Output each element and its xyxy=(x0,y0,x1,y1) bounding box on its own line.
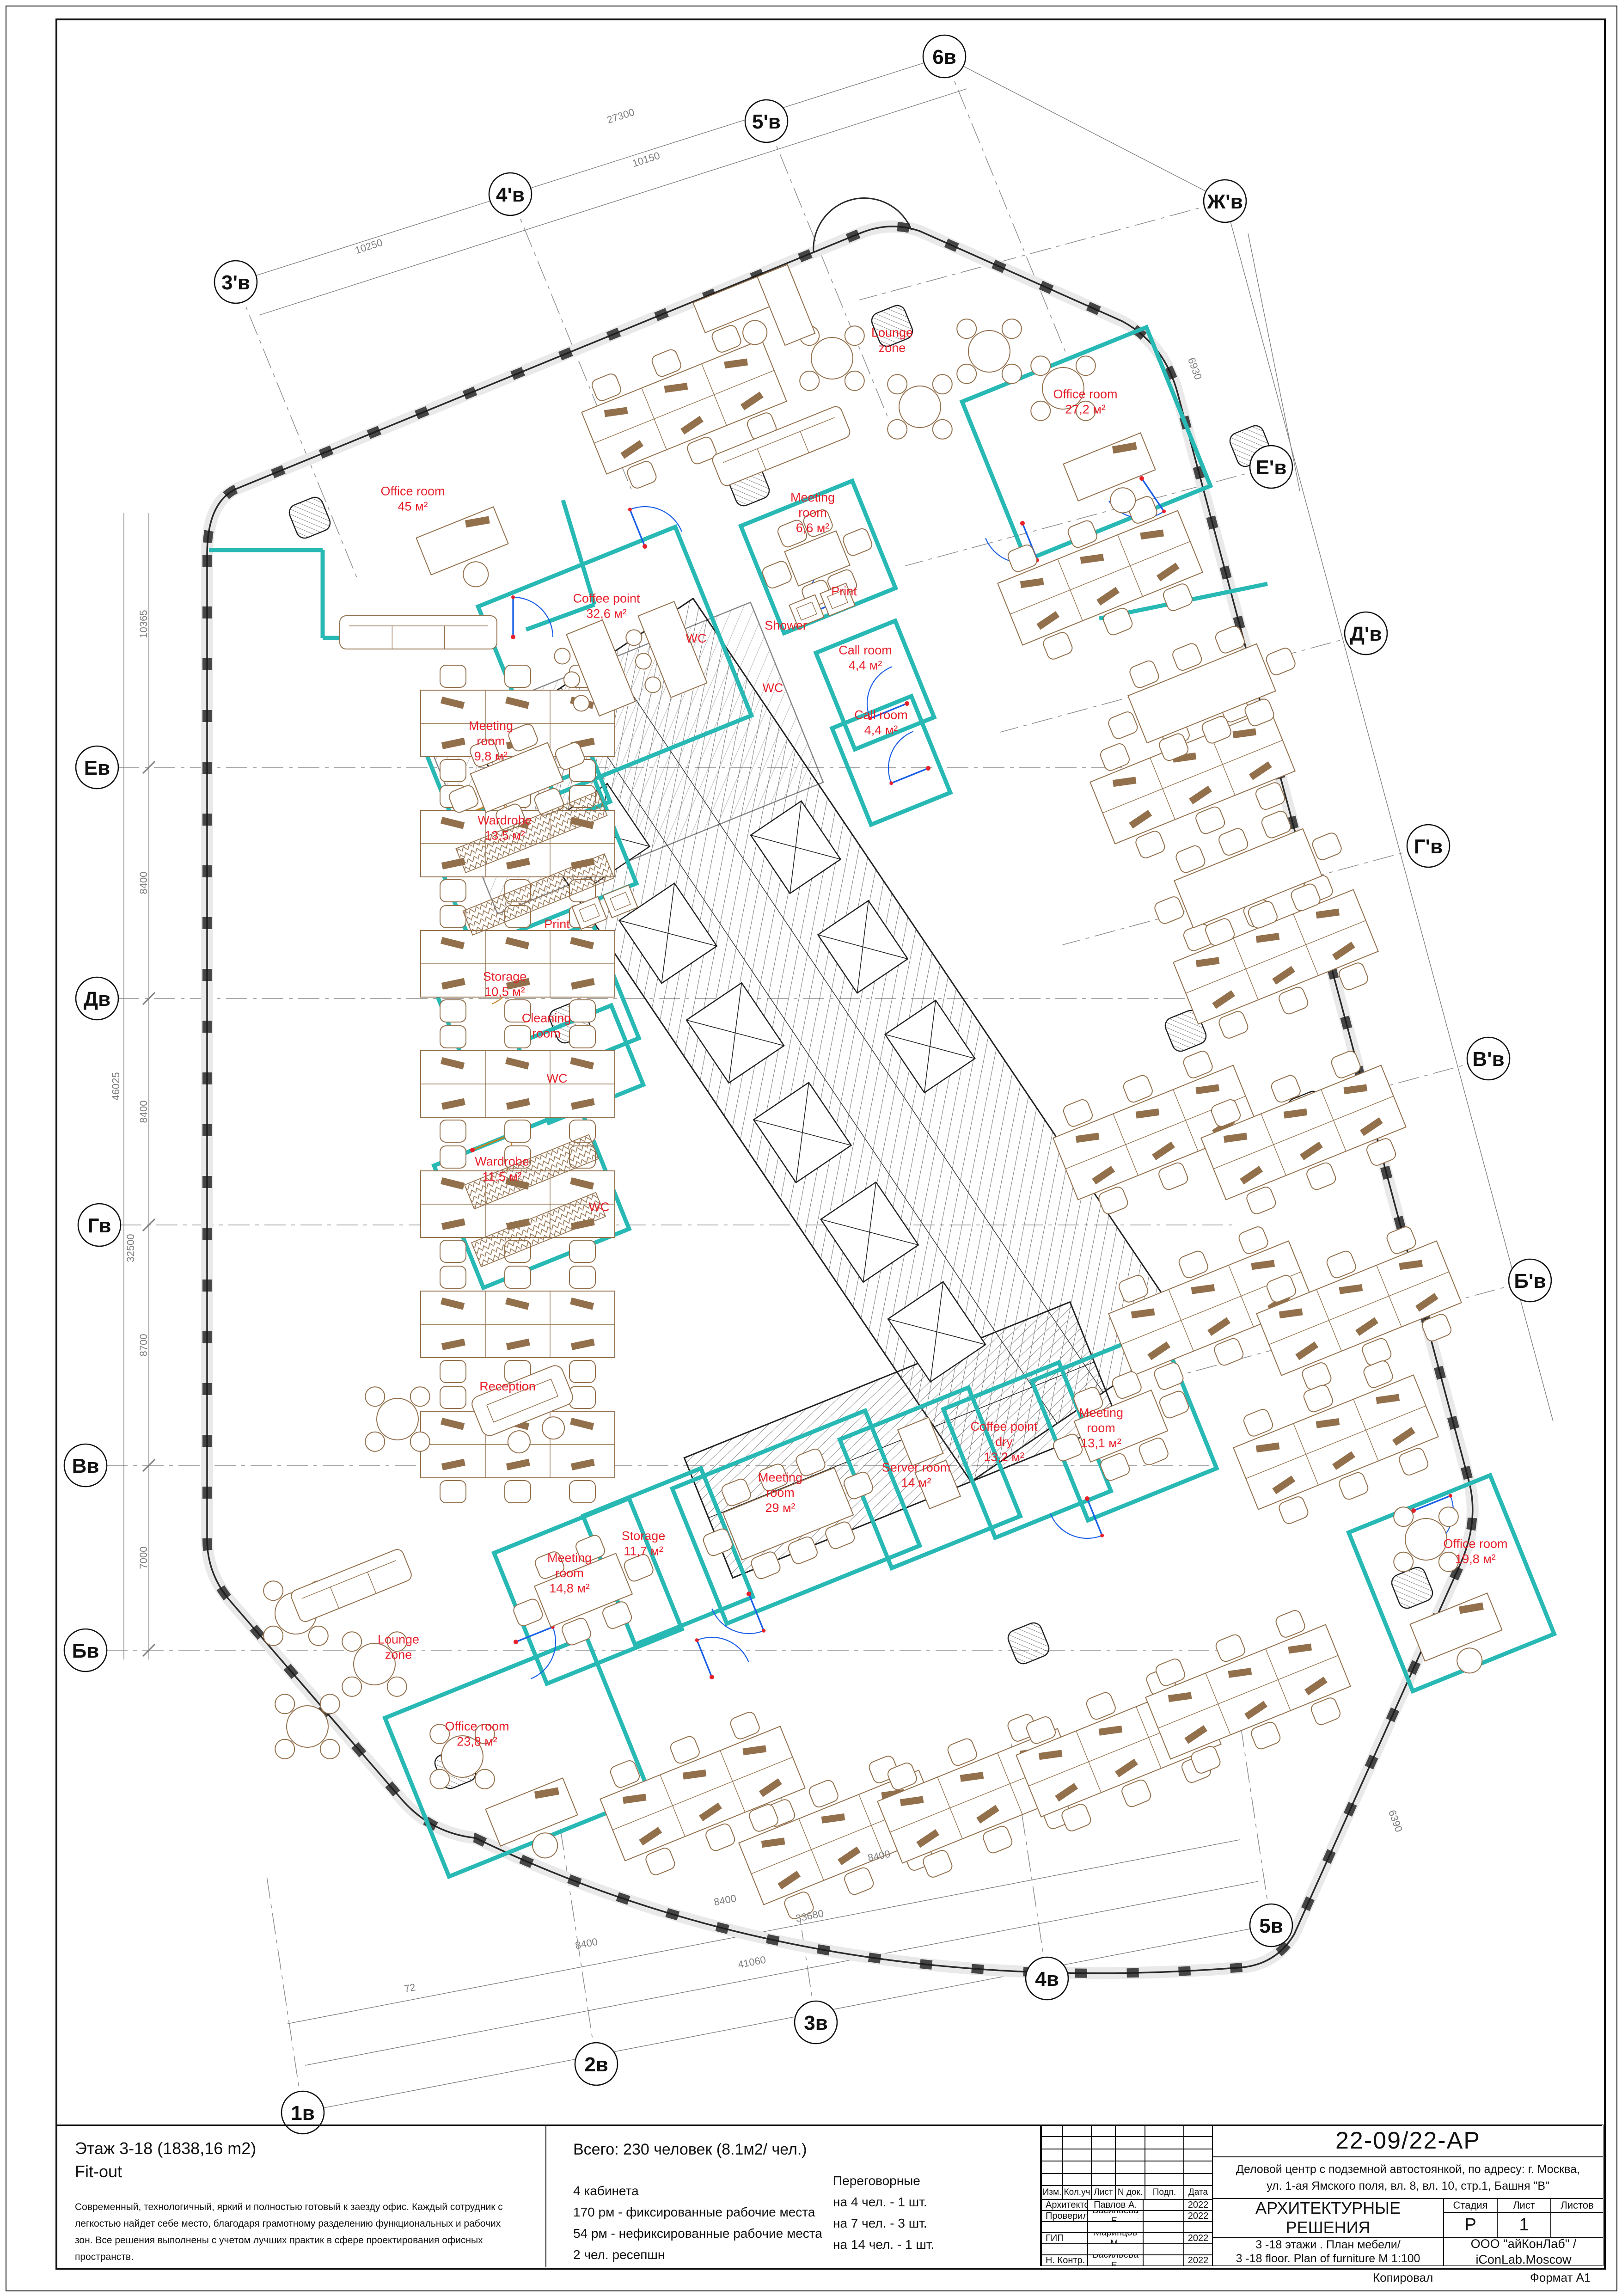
column xyxy=(1389,1565,1435,1611)
room-label-office-23-8: Office room xyxy=(445,1720,509,1733)
svg-text:Ев: Ев xyxy=(84,757,110,779)
round-table xyxy=(365,1387,430,1451)
company-line-2: iConLab.Moscow xyxy=(1475,2253,1571,2266)
room-label-storage-10-5: Storage xyxy=(483,970,527,984)
format-label: Формат А1 xyxy=(1530,2271,1591,2285)
title-block: 22-09/22-АР Деловой центр с подземной ав… xyxy=(1040,2125,1602,2266)
room-label-meeting-9-8: room xyxy=(477,734,505,748)
room-label-coffee-32-6: Coffee point xyxy=(573,592,640,606)
room-label-wc-3: WC xyxy=(547,1071,568,1085)
room-label-meeting-13-1: room xyxy=(1087,1421,1115,1435)
svg-text:3'в: 3'в xyxy=(221,271,250,294)
company: ООО "айКонЛаб" / iConLab.Moscow xyxy=(1444,2237,1604,2266)
copied-label: Копировал xyxy=(1373,2271,1433,2285)
stage-value-cell: Р xyxy=(1444,2212,1497,2237)
room-label-meeting-9-8: 9,8 м² xyxy=(474,749,508,763)
room-label-office-19-8: 19,8 м² xyxy=(1455,1552,1496,1566)
signature-cell xyxy=(1143,2244,1184,2255)
svg-text:В'в: В'в xyxy=(1472,1048,1504,1071)
room-walls xyxy=(385,1636,650,1876)
project-scale: М 1:100 xyxy=(1378,2252,1420,2265)
desk-cluster xyxy=(1136,1602,1360,1782)
signature-cell: Васильева Е. xyxy=(1088,2210,1143,2222)
signature-cell xyxy=(1041,2222,1088,2233)
capacity-item: 170 рм - фиксированные рабочие места xyxy=(573,2202,822,2223)
revision-header-cell: N док. xyxy=(1115,2186,1145,2199)
revision-empty-cell xyxy=(1184,2149,1212,2161)
room-label-wardrobe-11-5: 11,5 м² xyxy=(482,1170,522,1184)
floor-plan-canvas: 1025027300101506930103658400840087007000… xyxy=(0,0,1622,2296)
meeting-item: на 14 чел. - 1 шт. xyxy=(833,2234,934,2255)
signature-cell: 2022 xyxy=(1184,2199,1212,2210)
revision-empty-cell xyxy=(1041,2125,1063,2137)
dimension-text: 41060 xyxy=(737,1954,767,1971)
meeting-item: на 4 чел. - 1 шт. xyxy=(833,2192,934,2213)
revision-empty-cell xyxy=(1063,2137,1091,2149)
svg-text:1в: 1в xyxy=(291,2102,315,2125)
office-desk xyxy=(416,507,519,601)
revision-empty-cell xyxy=(1184,2125,1212,2137)
dimension-text: 46025 xyxy=(110,1072,122,1100)
axis-bubble-6в: 6в xyxy=(923,35,966,78)
room-label-storage-10-5: 10,5 м² xyxy=(484,985,525,999)
dimension-text: 72 xyxy=(403,1981,416,1995)
capacity-panel: Всего: 230 человек (8.1м2/ чел.) 4 кабин… xyxy=(546,2126,1095,2267)
room-label-lounge-bottom: zone xyxy=(385,1648,412,1662)
svg-text:4в: 4в xyxy=(1035,1968,1059,1990)
axis-line-3'в xyxy=(236,282,358,582)
revision-empty-cell xyxy=(1184,2161,1212,2173)
revision-empty-cell xyxy=(1041,2174,1063,2186)
signature-cell xyxy=(1088,2244,1143,2255)
project-line-1: 3 -18 этажи . План мебели/ xyxy=(1255,2238,1400,2251)
capacity-item: 54 рм - нефиксированные рабочие места xyxy=(573,2223,822,2244)
revision-empty-cell xyxy=(1091,2137,1115,2149)
revision-header-cell: Кол.уч xyxy=(1063,2186,1091,2199)
signature-cell: Проверил xyxy=(1041,2210,1088,2222)
room-label-office-19-8: Office room xyxy=(1443,1537,1507,1551)
revision-empty-cell xyxy=(1145,2161,1184,2173)
signature-cell: ГИП xyxy=(1041,2233,1088,2244)
dimension-text: 8700 xyxy=(138,1334,149,1357)
room-label-meeting-9-8: Meeting xyxy=(469,719,513,733)
company-line-1: ООО "айКонЛаб" / xyxy=(1471,2237,1577,2251)
svg-text:Г'в: Г'в xyxy=(1414,835,1443,858)
meeting-rooms-list: на 4 чел. - 1 шт.на 7 чел. - 3 шт.на 14 … xyxy=(833,2192,934,2255)
signature-cell xyxy=(1184,2244,1212,2255)
axis-bubble-Д'в: Д'в xyxy=(1345,612,1387,655)
svg-text:2в: 2в xyxy=(584,2053,608,2076)
partition-wall xyxy=(563,500,594,605)
axis-bubble-3в: 3в xyxy=(795,2001,837,2044)
room-label-office-23-8: 23,8 м² xyxy=(457,1735,497,1749)
round-table xyxy=(275,1694,340,1759)
signature-cell: Архитектор xyxy=(1041,2199,1088,2210)
room-label-meeting-6-6: 6,6 м² xyxy=(796,521,830,535)
svg-text:3в: 3в xyxy=(804,2012,828,2034)
room-label-office-27-2: 27,2 м² xyxy=(1065,403,1106,416)
axis-line-1в xyxy=(266,1875,303,2112)
signature-cell xyxy=(1143,2233,1184,2244)
address-line-1: Деловой центр с подземной автостоянкой, … xyxy=(1236,2163,1580,2176)
room-label-coffee-dry: dry xyxy=(995,1435,1013,1449)
signature-cell xyxy=(1143,2210,1184,2222)
stage-value-cell: 1 xyxy=(1497,2212,1551,2237)
axis-bubble-Ев: Ев xyxy=(76,746,118,789)
stage-header-cell: Листов xyxy=(1551,2198,1604,2212)
revision-empty-cell xyxy=(1145,2137,1184,2149)
round-table xyxy=(888,374,952,439)
room-label-meeting-14-8: room xyxy=(555,1566,584,1580)
room-label-storage-11-7: Storage xyxy=(622,1529,666,1543)
svg-text:5в: 5в xyxy=(1259,1915,1283,1937)
dimension-text: 10150 xyxy=(631,150,661,170)
room-label-office-45: 45 м² xyxy=(398,500,428,514)
room-label-wardrobe-13-5: Wardrobe xyxy=(477,814,532,827)
dimension-text: 6930 xyxy=(1186,356,1204,381)
door xyxy=(694,1623,750,1680)
signature-cell xyxy=(1041,2244,1088,2255)
signature-cell: 2022 xyxy=(1184,2255,1212,2266)
axis-bubble-Ж'в: Ж'в xyxy=(1204,180,1246,222)
revision-empty-cell xyxy=(1091,2149,1115,2161)
revision-empty-cell xyxy=(1145,2149,1184,2161)
room-label-wc-1: WC xyxy=(686,631,707,645)
revision-empty-cell xyxy=(1041,2149,1063,2161)
svg-text:Вв: Вв xyxy=(72,1455,99,1477)
drawing-sheet: 1025027300101506930103658400840087007000… xyxy=(0,0,1622,2296)
room-label-call-2: Call room xyxy=(854,708,908,722)
revision-empty-cell xyxy=(1063,2174,1091,2186)
axis-bubble-Гв: Гв xyxy=(78,1204,121,1246)
axis-bubble-5в: 5в xyxy=(1250,1904,1292,1947)
revision-empty-cell xyxy=(1091,2161,1115,2173)
signature-cell: 2022 xyxy=(1184,2210,1212,2222)
axis-bubble-Г'в: Г'в xyxy=(1407,825,1450,867)
room-label-coffee-32-6: 32,6 м² xyxy=(586,607,627,621)
dimension-text: 8400 xyxy=(574,1936,599,1952)
svg-text:Дв: Дв xyxy=(84,988,110,1010)
revision-empty-cell xyxy=(1184,2174,1212,2186)
desk-cluster xyxy=(988,488,1212,668)
partition-wall xyxy=(526,605,594,630)
meeting-rooms-summary: Переговорные на 4 чел. - 1 шт.на 7 чел. … xyxy=(833,2170,934,2255)
axis-bubble-Б'в: Б'в xyxy=(1509,1259,1551,1302)
dimension-text: 27300 xyxy=(606,106,636,126)
stage-header-cell: Стадия xyxy=(1444,2198,1497,2212)
dim-chain xyxy=(944,56,1225,201)
sofa xyxy=(340,616,497,649)
signature-cell: Маринцов М. xyxy=(1088,2233,1143,2244)
signature-cell: 2022 xyxy=(1184,2233,1212,2244)
signature-cell: Васильева Е. xyxy=(1088,2255,1143,2266)
revision-header-cell: Изм. xyxy=(1041,2186,1063,2199)
room-label-meeting-29: 29 м² xyxy=(765,1501,795,1515)
revision-empty-cell xyxy=(1041,2137,1063,2149)
room-label-server-14: 14 м² xyxy=(901,1476,931,1490)
room-label-server-14: Server room xyxy=(882,1461,951,1475)
svg-text:Ж'в: Ж'в xyxy=(1206,190,1243,213)
axis-bubble-4'в: 4'в xyxy=(489,173,532,215)
room-label-storage-11-7: 11,7 м² xyxy=(624,1544,663,1558)
dimension-text: 8400 xyxy=(138,872,149,894)
revision-empty-cell xyxy=(1041,2161,1063,2173)
project-line-2: 3 -18 floor. Plan of furniture xyxy=(1236,2252,1376,2265)
room-label-meeting-13-1: Meeting xyxy=(1079,1406,1123,1420)
desk-cluster xyxy=(421,1266,615,1383)
signature-cell xyxy=(1184,2222,1212,2233)
room-label-wardrobe-11-5: Wardrobe xyxy=(475,1155,529,1169)
room-label-meeting-14-8: 14,8 м² xyxy=(549,1581,590,1595)
svg-text:6в: 6в xyxy=(932,46,956,68)
meeting-rooms-title: Переговорные xyxy=(833,2170,934,2192)
room-label-call-2: 4,4 м² xyxy=(864,723,898,737)
signature-cell xyxy=(1143,2199,1184,2210)
room-label-wc-2: WC xyxy=(763,681,783,695)
revision-empty-cell xyxy=(1145,2174,1184,2186)
axis-bubble-2в: 2в xyxy=(575,2043,618,2085)
room-label-office-27-2: Office room xyxy=(1053,387,1117,401)
sofa xyxy=(289,1548,413,1623)
desk-cluster xyxy=(421,1026,615,1142)
room-label-print-left: Print xyxy=(544,917,570,931)
room-label-lounge-bottom: Lounge xyxy=(378,1633,419,1647)
room-label-meeting-29: Meeting xyxy=(758,1470,802,1484)
stage-value-cell xyxy=(1551,2212,1604,2237)
floor-title: Этаж 3-18 (1838,16 m2) xyxy=(75,2139,256,2158)
axis-bubble-Бв: Бв xyxy=(64,1629,107,1671)
capacity-list: 4 кабинета170 рм - фиксированные рабочие… xyxy=(573,2180,822,2265)
project-address: Деловой центр с подземной автостоянкой, … xyxy=(1212,2157,1604,2198)
svg-text:Е'в: Е'в xyxy=(1256,456,1287,479)
dimension-text: 7000 xyxy=(138,1547,149,1569)
svg-text:Б'в: Б'в xyxy=(1514,1270,1546,1292)
column xyxy=(1006,1621,1052,1666)
signature-cell: Н. Контр. xyxy=(1041,2255,1088,2266)
signature-cell: Павлов А. xyxy=(1088,2199,1143,2210)
dimension-text: 8400 xyxy=(138,1101,149,1123)
signature-cell xyxy=(1143,2255,1184,2266)
signature-cell xyxy=(1143,2222,1184,2233)
revision-empty-cell xyxy=(1063,2161,1091,2173)
capacity-item: 4 кабинета xyxy=(573,2180,822,2202)
dimension-text: 10365 xyxy=(138,610,149,638)
room-label-cleaning: Cleaning xyxy=(522,1011,571,1025)
room-label-lounge-top: zone xyxy=(879,341,906,355)
doc-number: 22-09/22-АР xyxy=(1212,2125,1604,2157)
capacity-item: 2 чел. ресепшн xyxy=(573,2244,822,2265)
floor-subtitle: Fit-out xyxy=(75,2162,122,2181)
axis-bubble-5'в: 5'в xyxy=(745,100,788,142)
round-table xyxy=(957,319,1022,384)
meeting-item: на 7 чел. - 3 шт. xyxy=(833,2213,934,2234)
room-label-shower: Shower xyxy=(765,618,807,632)
axis-bubble-3'в: 3'в xyxy=(214,261,257,303)
dimension-text: 8400 xyxy=(713,1892,737,1908)
room-label-coffee-dry: Coffee point xyxy=(970,1420,1038,1433)
svg-text:Гв: Гв xyxy=(88,1214,111,1237)
main-title: АРХИТЕКТУРНЫЕ РЕШЕНИЯ xyxy=(1212,2198,1444,2237)
room-label-lounge-top: Lounge xyxy=(871,326,913,340)
room-label-meeting-6-6: Meeting xyxy=(790,490,835,504)
room-label-cleaning: room xyxy=(532,1027,561,1041)
room-label-call-1: 4,4 м² xyxy=(849,659,882,673)
room-label-meeting-29: room xyxy=(766,1486,795,1500)
revision-empty-cell xyxy=(1091,2125,1115,2137)
stage-header-cell: Лист xyxy=(1497,2198,1551,2212)
room-label-wardrobe-13-5: 13,5 м² xyxy=(484,829,525,843)
project-name: 3 -18 этажи . План мебели/ 3 -18 floor. … xyxy=(1212,2237,1444,2266)
door xyxy=(511,595,553,639)
axis-bubble-Вв: Вв xyxy=(64,1444,107,1487)
revision-empty-cell xyxy=(1115,2137,1145,2149)
room-label-print-top: Print xyxy=(831,584,857,598)
revision-header-cell: Лист xyxy=(1091,2186,1115,2199)
axis-bubble-Дв: Дв xyxy=(76,977,118,1020)
dimension-text: 6390 xyxy=(1386,1808,1405,1834)
room-label-meeting-14-8: Meeting xyxy=(547,1551,592,1565)
room-label-meeting-6-6: room xyxy=(798,506,827,520)
summary-panel: Этаж 3-18 (1838,16 m2) Fit-out Современн… xyxy=(55,2126,545,2267)
revision-header-cell: Подп. xyxy=(1145,2186,1184,2199)
revision-empty-cell xyxy=(1063,2125,1091,2137)
room-label-reception: Reception xyxy=(479,1379,536,1393)
axis-bubble-В'в: В'в xyxy=(1467,1037,1510,1080)
revision-empty-cell xyxy=(1145,2125,1184,2137)
svg-text:Бв: Бв xyxy=(72,1640,99,1662)
svg-text:4'в: 4'в xyxy=(496,184,525,206)
room-label-coffee-dry: 13,2 м² xyxy=(984,1450,1024,1464)
revision-empty-cell xyxy=(1115,2174,1145,2186)
axis-bubble-Е'в: Е'в xyxy=(1250,446,1292,488)
room-label-meeting-13-1: 13,1 м² xyxy=(1081,1436,1121,1450)
axis-bubble-4в: 4в xyxy=(1026,1957,1068,2000)
room-label-call-1: Call room xyxy=(839,643,892,657)
revision-empty-cell xyxy=(1184,2137,1212,2149)
room-label-wc-4: WC xyxy=(589,1200,610,1214)
axis-line-6в xyxy=(944,56,1067,356)
dimension-text: 32500 xyxy=(125,1234,136,1262)
capacity-total: Всего: 230 человек (8.1м2/ чел.) xyxy=(573,2141,807,2159)
room-label-office-45: Office room xyxy=(380,484,445,498)
revision-empty-cell xyxy=(1115,2149,1145,2161)
floor-description: Современный, технологичный, яркий и полн… xyxy=(75,2199,519,2265)
signature-cell xyxy=(1088,2222,1143,2233)
svg-text:5'в: 5'в xyxy=(752,110,781,133)
revision-empty-cell xyxy=(1115,2161,1145,2173)
revision-empty-cell xyxy=(1091,2174,1115,2186)
revision-header-cell: Дата xyxy=(1184,2186,1212,2199)
svg-text:Д'в: Д'в xyxy=(1350,623,1382,645)
revision-empty-cell xyxy=(1115,2125,1145,2137)
revision-empty-cell xyxy=(1063,2149,1091,2161)
address-line-2: ул. 1-ая Ямского поля, вл. 8, вл. 10, ст… xyxy=(1267,2180,1549,2192)
